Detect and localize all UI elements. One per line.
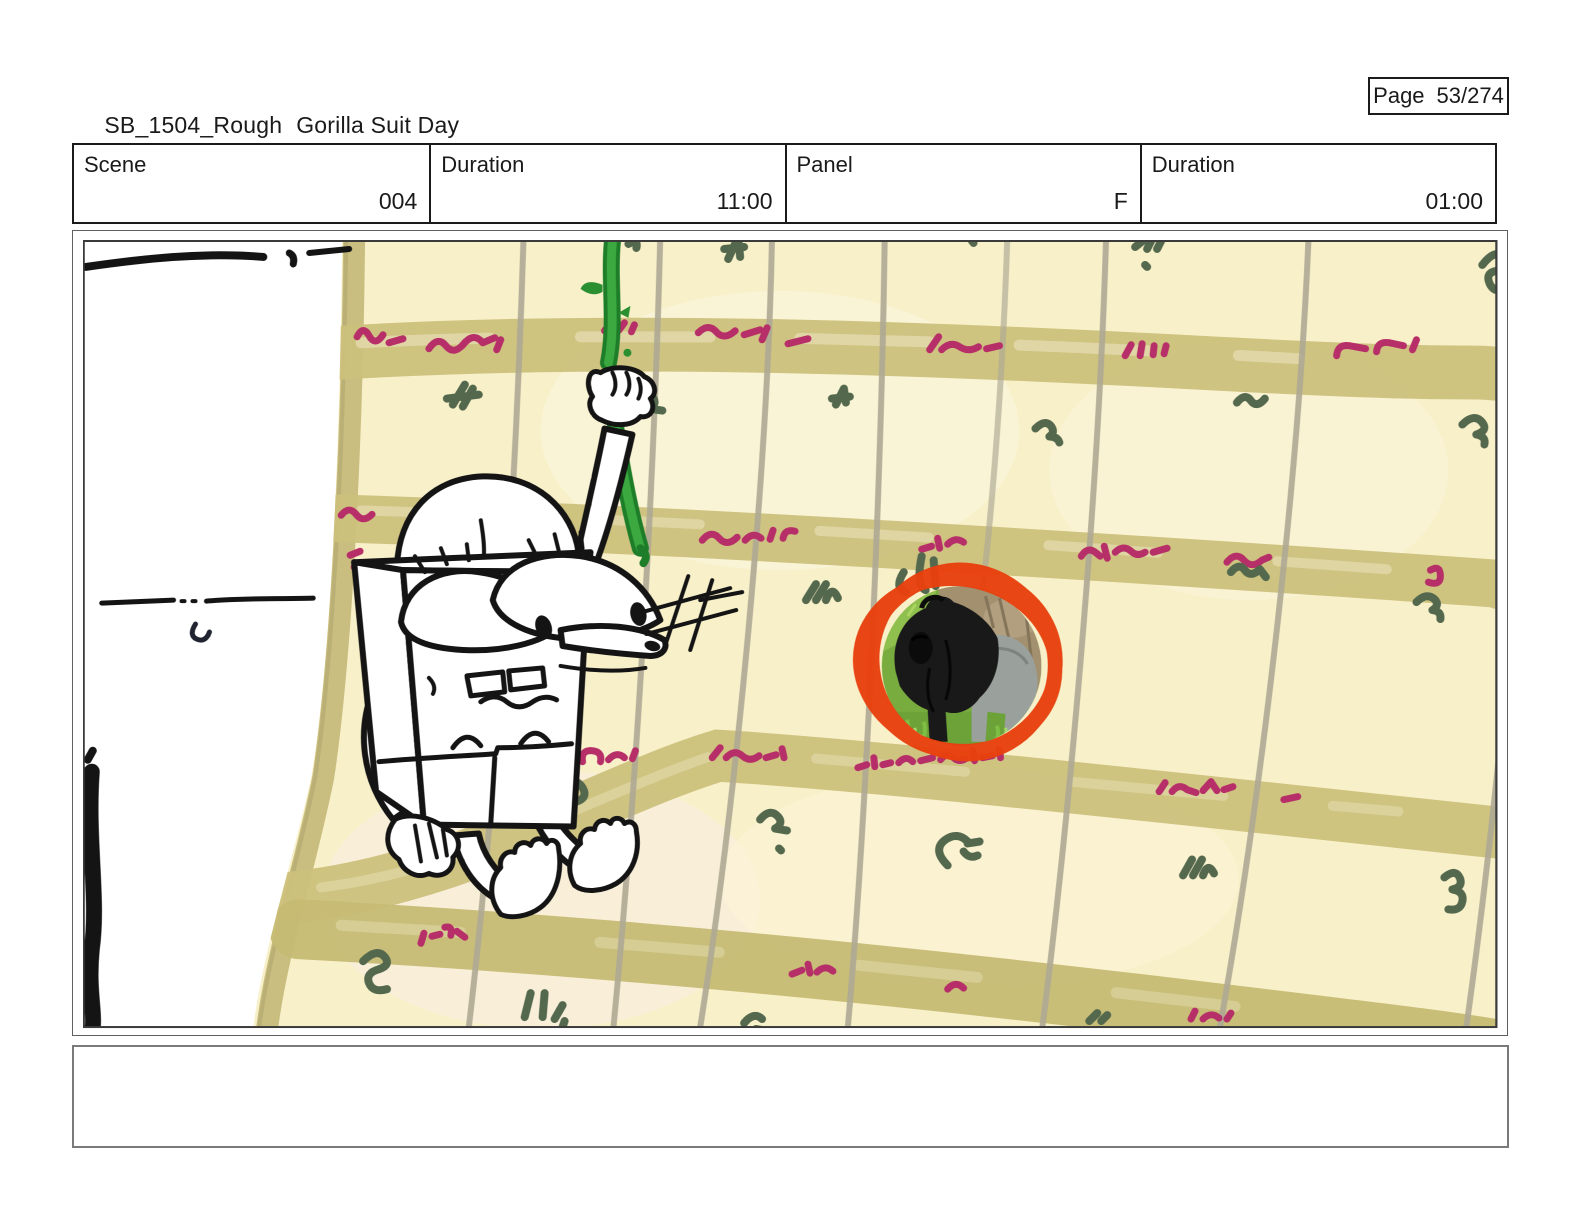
- storyboard-image-panel: [72, 230, 1508, 1036]
- page-label: Page: [1373, 83, 1424, 109]
- scene-label: Scene: [84, 152, 146, 178]
- storyboard-artwork: [73, 231, 1507, 1035]
- panel-label: Panel: [797, 152, 853, 178]
- meta-cell-scene: Scene 004: [74, 145, 429, 222]
- gorilla-photo: [882, 586, 1042, 746]
- project-code: SB_1504_Rough: [104, 112, 282, 138]
- storyboard-page: SB_1504_RoughGorilla Suit Day Page 53/27…: [0, 0, 1584, 1224]
- meta-cell-duration-scene: Duration 11:00: [429, 145, 784, 222]
- scene-duration-label: Duration: [441, 152, 524, 178]
- page-number-box: Page 53/274: [1368, 77, 1509, 115]
- scene-duration-value: 11:00: [717, 188, 773, 215]
- panel-duration-label: Duration: [1152, 152, 1235, 178]
- episode-title: Gorilla Suit Day: [296, 112, 459, 138]
- panel-meta-table: Scene 004 Duration 11:00 Panel F Duratio…: [72, 143, 1497, 224]
- scene-value: 004: [379, 188, 417, 215]
- meta-cell-duration-panel: Duration 01:00: [1140, 145, 1495, 222]
- panel-duration-value: 01:00: [1425, 188, 1483, 215]
- meta-cell-panel: Panel F: [785, 145, 1140, 222]
- panel-value: F: [1114, 188, 1128, 215]
- page-value: 53/274: [1437, 83, 1504, 109]
- notes-box: [72, 1045, 1509, 1148]
